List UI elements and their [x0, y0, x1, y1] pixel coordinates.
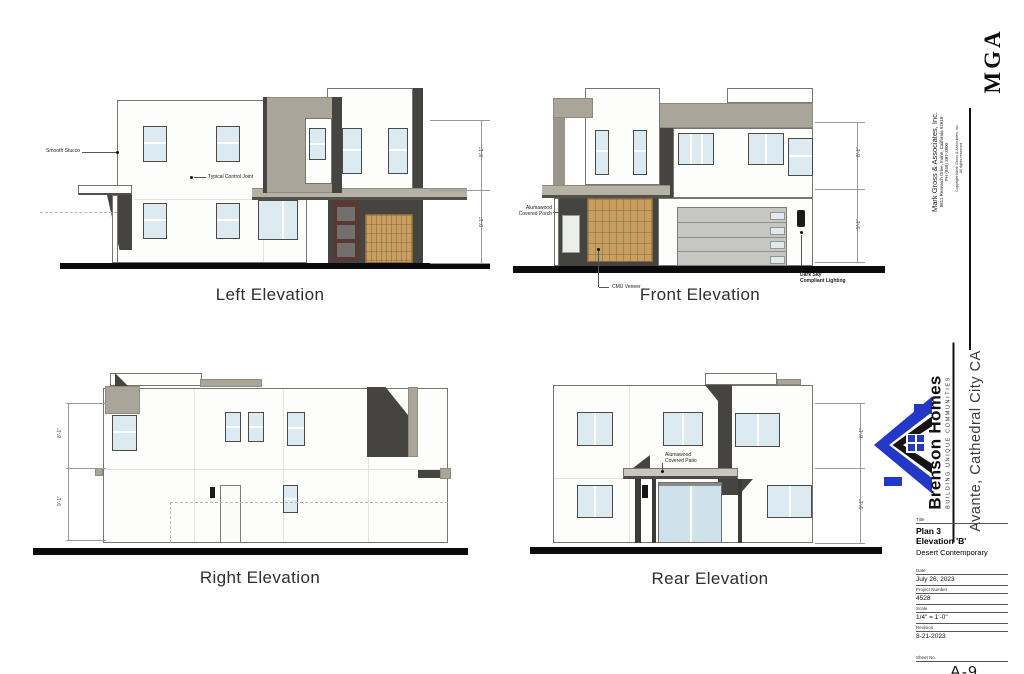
date-label: Date [916, 567, 1008, 575]
titleblock-fields: Title Plan 3 Elevation 'B' Desert Contem… [916, 516, 1012, 674]
annotation-lighting: Dark Sky Compliant Lighting [800, 272, 846, 285]
dimension-line [68, 403, 69, 540]
window [287, 412, 305, 446]
annotation-porch: Alumawood Covered Porch [512, 205, 552, 218]
wall-light-fixture [642, 485, 648, 498]
roof-cap [200, 379, 262, 387]
window [788, 138, 813, 176]
parapet-cap [553, 98, 593, 118]
window [577, 412, 613, 446]
patio-roof [623, 468, 738, 479]
title-label: Title [916, 516, 1008, 524]
drawing-sheet: 8'-1" 9'-1" Smooth Stucco Typical Contro… [0, 0, 1024, 674]
architect-phone: PH (949) 387-3800 [944, 102, 949, 222]
dimension-label: 8'-1" [57, 423, 63, 443]
window [663, 412, 703, 446]
builder-block: Brenson Homes BUILDING UNIQUE COMMUNITIE… [926, 343, 955, 543]
annotation-patio: Alumawood Covered Patio [665, 452, 697, 465]
window [633, 130, 647, 175]
builder-name: Brenson Homes [926, 343, 946, 543]
architect-logo: MGA [980, 11, 1006, 111]
patio-post [635, 479, 641, 543]
window [342, 128, 362, 174]
window [388, 128, 408, 174]
window [258, 200, 298, 240]
elevation-title: Right Elevation [30, 568, 490, 588]
porch-post [112, 195, 118, 263]
wall-light-fixture [210, 487, 215, 498]
window [143, 126, 167, 162]
architect-info: Mark Gross & Associates, Inc. 8811 Resea… [930, 102, 954, 222]
date-value: July 26, 2023 [916, 575, 1008, 586]
parapet [727, 88, 813, 103]
fascia-band [650, 103, 813, 128]
window [112, 415, 137, 451]
dimension-label: 9'-1" [856, 214, 862, 234]
ground-line [33, 548, 468, 555]
entry-door [333, 201, 359, 261]
dimension-label: 8'-1" [479, 142, 485, 162]
window [143, 203, 167, 239]
cmu-veneer [587, 198, 653, 262]
architect-name: Mark Gross & Associates, Inc. [930, 102, 939, 222]
sheet-number-label: Sheet No. [916, 654, 1008, 662]
sheet-number: A-9 [916, 662, 1012, 674]
revision-label: Revision [916, 624, 1008, 632]
dimension-label: 9'-1" [859, 494, 865, 514]
porch-post [554, 198, 559, 266]
elevation-title: Front Elevation [510, 285, 890, 305]
scupper [95, 468, 103, 476]
window [577, 485, 613, 518]
window [309, 128, 326, 160]
patio-post [738, 479, 742, 543]
project-number-value: 4528 [916, 594, 1008, 605]
builder-logo-house-icon [874, 390, 932, 500]
patio-post [652, 479, 656, 543]
left-elevation-drawing: 8'-1" 9'-1" Smooth Stucco Typical Contro… [40, 85, 500, 310]
window [748, 133, 784, 165]
parapet [705, 373, 777, 385]
annotation-control-joint: Typical Control Joint [208, 174, 253, 180]
project-name: Avante, Cathedral City CA [968, 341, 986, 541]
dimension-label: 8'-1" [856, 142, 862, 162]
dimension-label: 9'-1" [479, 212, 485, 232]
right-elevation-drawing: 8'-1" 9'-1" Right Elevation [30, 360, 490, 595]
elevation-name: Elevation 'B' [916, 536, 1012, 546]
elevation-title: Left Elevation [40, 285, 500, 305]
sliding-glass-door [658, 482, 722, 543]
parapet-box [105, 386, 140, 414]
copyright-note: Copyright Mark Gross & Associates, Inc. … [955, 113, 965, 203]
window [216, 203, 240, 239]
window [216, 126, 240, 162]
revision-value: 8-21-2023 [916, 632, 1008, 642]
window [283, 485, 298, 513]
porch-roof-band [542, 185, 670, 198]
annotation-smooth-stucco: Smooth Stucco [46, 148, 80, 154]
elevation-title: Rear Elevation [530, 569, 890, 589]
rear-elevation-drawing: Alumawood Covered Patio 8'-1" 9'-1" Rear… [530, 365, 890, 600]
ground-line [60, 263, 490, 269]
scale-label: Scale [916, 605, 1008, 613]
wall-shadow-edge [413, 88, 423, 263]
project-number-label: Project Number [916, 586, 1008, 594]
scale-value: 1/4" = 1'-0" [916, 613, 1008, 624]
ground-line [530, 547, 882, 554]
scupper [418, 470, 440, 478]
builder-tagline: BUILDING UNIQUE COMMUNITIES [946, 343, 952, 543]
wall-light-fixture [797, 210, 805, 227]
front-elevation-drawing: 8'-1" 9'-1" Alumawood Covered Porch CMU … [510, 85, 890, 310]
plan-name: Plan 3 [916, 524, 1012, 536]
window [678, 133, 714, 165]
dimension-label: 8'-1" [859, 423, 865, 443]
wood-screen [365, 214, 413, 263]
window [735, 413, 780, 447]
dimension-label: 9'-1" [57, 491, 63, 511]
window [225, 412, 241, 442]
style-name: Desert Contemporary [916, 546, 1012, 567]
window [248, 412, 264, 442]
window [767, 485, 812, 518]
window [595, 130, 609, 175]
titleblock-divider [969, 108, 971, 350]
wing-parapet [78, 185, 132, 195]
side-door [220, 485, 241, 543]
garage-door [677, 207, 787, 266]
